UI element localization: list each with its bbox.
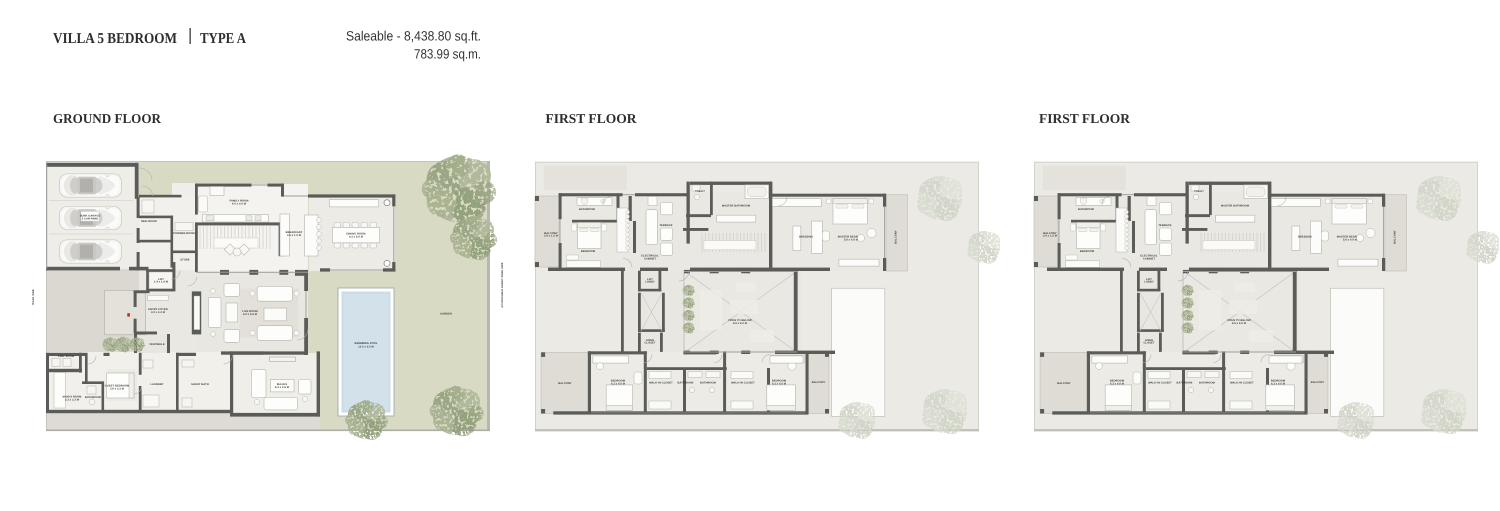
svg-text:783.99 sq.m.: 783.99 sq.m. [414,47,481,62]
svg-text:3.6 x 1.5 M: 3.6 x 1.5 M [544,235,558,238]
svg-text:6.3 x 4.5 M: 6.3 x 4.5 M [275,386,289,389]
svg-text:CLOSET: CLOSET [644,342,655,345]
svg-text:TOILET: TOILET [695,190,705,193]
svg-text:VILLA 5 BEDROOM: VILLA 5 BEDROOM [53,31,177,47]
svg-text:FIRST FLOOR: FIRST FLOOR [1039,111,1130,126]
svg-text:VESTIBULE: VESTIBULE [149,343,165,346]
svg-text:3.0 x 4.2 M: 3.0 x 4.2 M [151,311,165,314]
svg-text:ACCESSABLE FAMILY PARK SIDE: ACCESSABLE FAMILY PARK SIDE [501,262,504,307]
svg-text:LOBBY: LOBBY [645,281,655,284]
svg-text:1.9 x 1.9 M: 1.9 x 1.9 M [154,281,168,284]
svg-text:CABINET: CABINET [644,257,657,260]
svg-text:BATHROOM: BATHROOM [85,396,101,399]
svg-text:WALK-IN CLOSET: WALK-IN CLOSET [731,382,755,385]
svg-text:POWDER ROOM: POWDER ROOM [173,232,195,235]
svg-text:4.3 x 4.0 M: 4.3 x 4.0 M [611,382,625,385]
svg-text:BALCONY: BALCONY [558,382,572,385]
svg-text:2.3 x 3.3 M: 2.3 x 3.3 M [65,398,79,401]
svg-text:BALCONY: BALCONY [812,381,826,384]
svg-text:MUD ROOM: MUD ROOM [141,220,157,223]
svg-text:4.3 x 4.0 M: 4.3 x 4.0 M [772,382,786,385]
svg-text:GROUND FLOOR: GROUND FLOOR [53,111,161,126]
svg-text:5.6 x 4.0 M: 5.6 x 4.0 M [844,239,858,242]
svg-text:STORE: STORE [180,259,190,262]
svg-text:FIRST FLOOR: FIRST FLOOR [546,111,637,126]
svg-text:BALCONY: BALCONY [895,230,898,244]
svg-text:4.2 x 8.0 M: 4.2 x 8.0 M [349,236,363,239]
svg-text:TERRACE: TERRACE [659,224,672,227]
svg-text:Saleable - 8,438.80 sq.ft.: Saleable - 8,438.80 sq.ft. [346,29,481,44]
svg-text:TYPE A: TYPE A [200,31,246,47]
svg-text:MASTER BATHROOM: MASTER BATHROOM [722,205,750,208]
svg-text:3.0 x 1.0 M: 3.0 x 1.0 M [287,234,301,237]
svg-text:6.0 x 4.0 M: 6.0 x 4.0 M [232,203,246,206]
svg-text:BEDROOM: BEDROOM [581,250,595,253]
svg-text:LAUNDRY: LAUNDRY [150,383,163,386]
svg-text:GARDEN: GARDEN [440,313,452,316]
svg-text:BATHROOM: BATHROOM [700,382,716,385]
svg-text:WALK-IN CLOSET: WALK-IN CLOSET [649,382,673,385]
svg-text:3.6 x 3.3 M: 3.6 x 3.3 M [110,388,124,391]
svg-text:GUEST BATH: GUEST BATH [191,383,209,386]
svg-text:3 CAR PARK: 3 CAR PARK [82,218,99,221]
svg-text:PWD. ROOM: PWD. ROOM [58,355,74,358]
svg-text:ROAD SIDE: ROAD SIDE [32,289,35,304]
svg-text:DRESSING: DRESSING [799,236,813,239]
svg-text:5.0 x 5.5 M: 5.0 x 5.5 M [243,313,257,316]
svg-text:8.6 x 8.2 M: 8.6 x 8.2 M [733,322,747,325]
svg-text:BATHROOM: BATHROOM [579,208,595,211]
svg-text:12.0 x 4.0 M: 12.0 x 4.0 M [358,346,374,349]
svg-text:BATHROOM: BATHROOM [678,382,694,385]
